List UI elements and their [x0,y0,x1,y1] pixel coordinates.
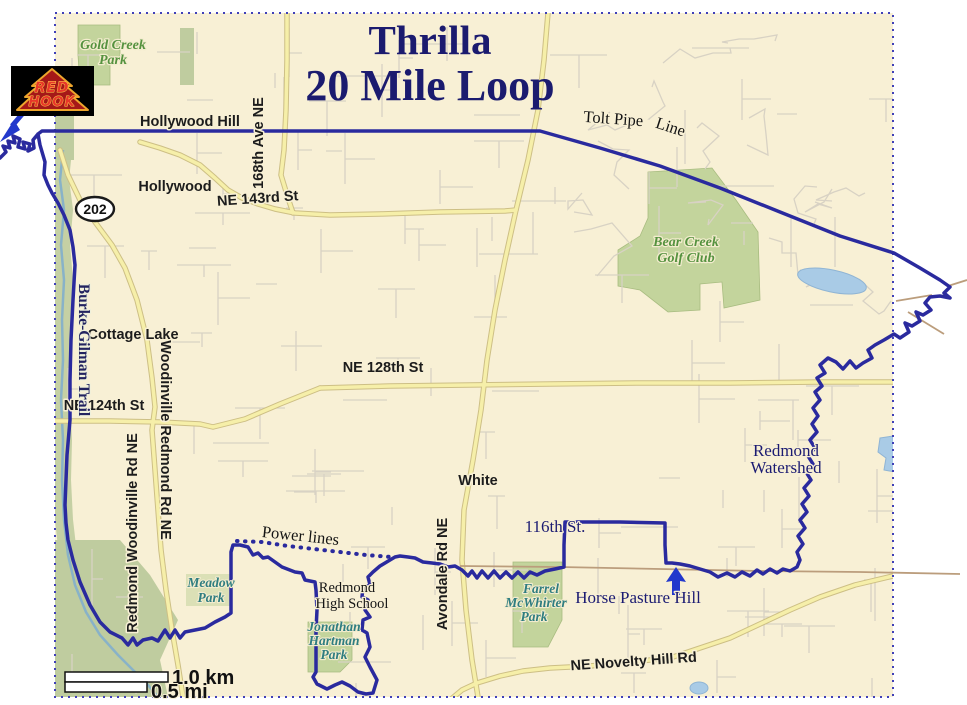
map-label-watershed: Watershed [750,458,822,477]
map-label-park: Park [198,590,225,605]
map-label-woodinville-redmond-rd-ne: Woodinville Redmond Rd NE [157,340,173,540]
map-label-gold-creek: Gold Creek [80,38,146,53]
route-202-shield: 202 [76,197,114,221]
map-label-hartman: Hartman [307,633,359,648]
map-label-high-school: High School [316,596,389,612]
map-label-redmond-woodinville-rd-ne: Redmond Woodinville Rd NE [125,433,141,633]
map-label-park: Park [99,53,127,68]
map-label-golf-club: Golf Club [657,251,714,266]
map-label-mcwhirter: McWhirter [504,595,567,610]
map-label-farrel: Farrel [522,581,559,596]
map-label-burke-gilman-trail: Burke-Gilman Trail [75,284,92,417]
map-label-park: Park [321,647,348,662]
map-label-116th-st-: 116th St. [525,517,586,536]
stub-2 [908,312,944,334]
redhook-logo-text-hook: HOOK [28,95,75,110]
map-page: 2021.0 km0.5 miHollywood HillHollywoodNE… [0,0,967,705]
map-label-redmond: Redmond [319,580,376,596]
map-label-ne-128th-st: NE 128th St [343,360,424,376]
map-label-hollywood-hill: Hollywood Hill [140,114,240,130]
map-label-park: Park [521,609,548,624]
map-label-avondale-rd-ne: Avondale Rd NE [435,518,451,631]
route-202-label: 202 [83,201,107,217]
scale-bar-mi [65,682,147,692]
map-label-hollywood: Hollywood [138,179,211,195]
novelty-pond [690,682,708,694]
redhook-logo: RED HOOK [11,66,94,116]
scale-mi-label: 0.5 mi [151,681,208,703]
map-label-bear-creek: Bear Creek [652,235,719,250]
map-label-horse-pasture-hill: Horse Pasture Hill [575,588,701,607]
map-label-white: White [458,473,497,489]
stub-3 [948,280,967,286]
map-label-168th-ave-ne: 168th Ave NE [251,97,267,189]
map-label-jonathan: Jonathan [306,619,360,634]
redhook-logo-text-red: RED [35,80,70,96]
trail-map: 2021.0 km0.5 miHollywood HillHollywoodNE… [0,0,967,705]
map-label-meadow: Meadow [186,575,235,590]
sage-strip-north [180,28,194,85]
